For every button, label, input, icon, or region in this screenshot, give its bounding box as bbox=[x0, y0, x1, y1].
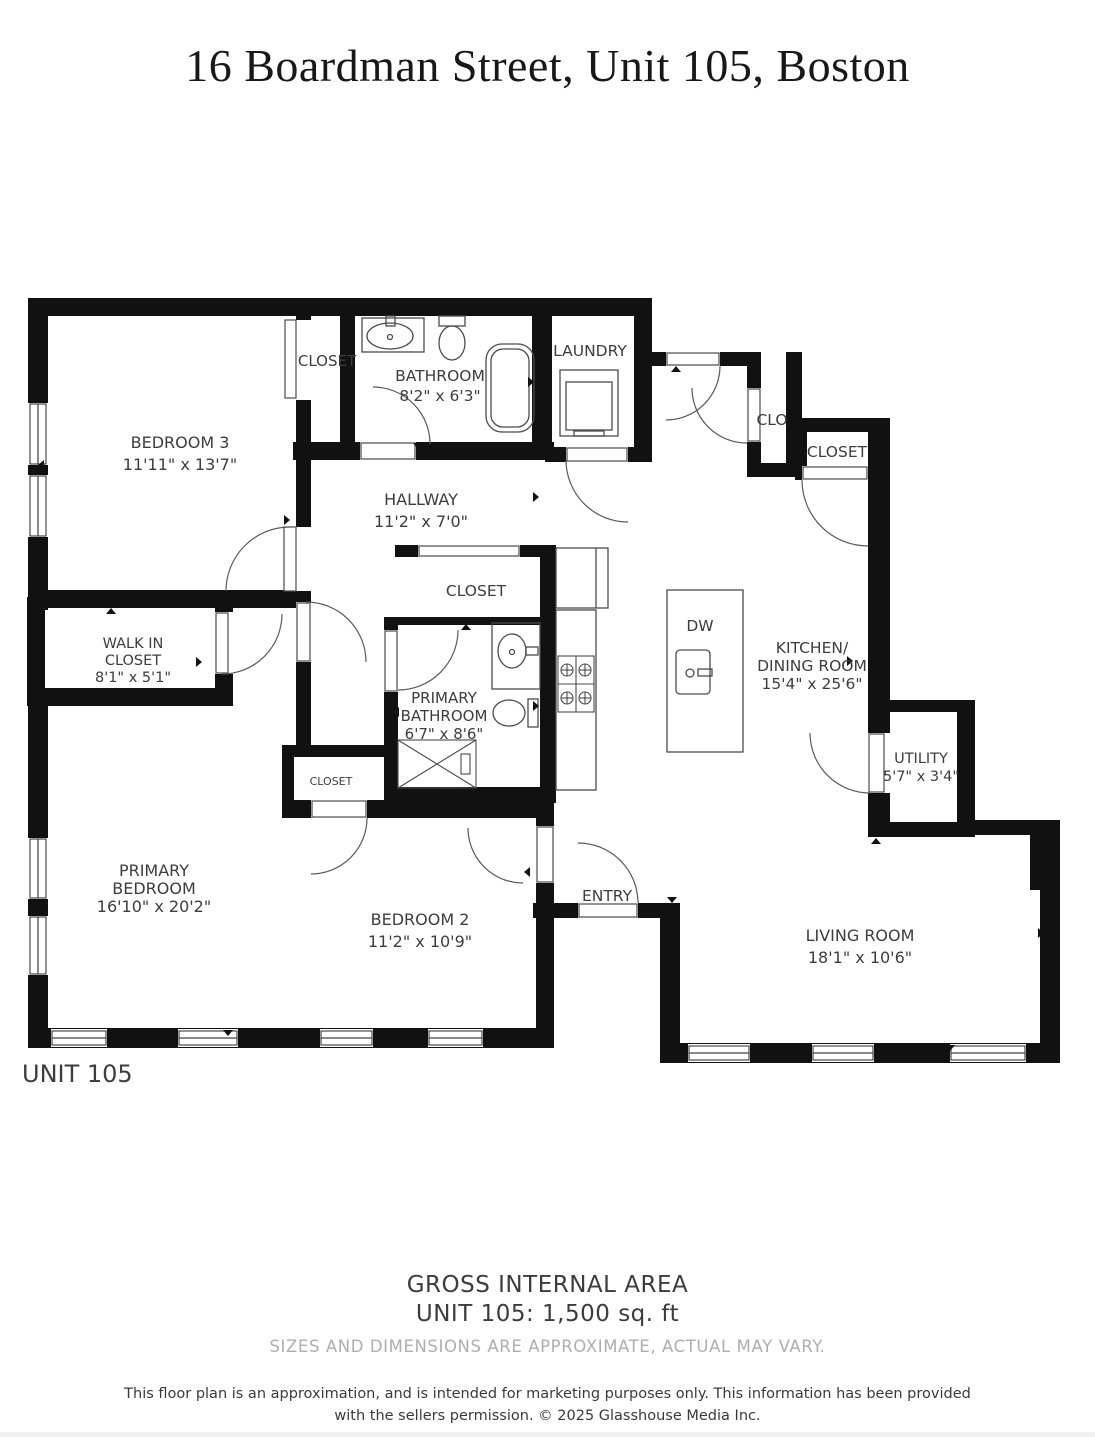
dishwasher-icon bbox=[676, 650, 712, 694]
primary-toilet-icon bbox=[493, 699, 538, 727]
walk-in-closet-label-2: CLOSET bbox=[105, 653, 161, 669]
kitchen-label-1: KITCHEN/ bbox=[776, 639, 849, 657]
closet-right-label: CLOSET bbox=[807, 443, 868, 461]
primary-bathroom-label-1: PRIMARY bbox=[411, 689, 478, 707]
walk-in-closet-dims: 8'1" x 5'1" bbox=[95, 670, 171, 686]
utility-label: UTILITY bbox=[894, 751, 948, 767]
closet-small-label: CLOSET bbox=[310, 775, 353, 788]
living-room-dims: 18'1" x 10'6" bbox=[808, 948, 912, 967]
bottom-strip bbox=[0, 1432, 1095, 1437]
bedroom3-label: BEDROOM 3 bbox=[131, 433, 230, 452]
primary-bedroom-label-2: BEDROOM bbox=[112, 879, 196, 898]
dw-label: DW bbox=[686, 617, 713, 635]
disclaimer: This floor plan is an approximation, and… bbox=[113, 1383, 983, 1428]
hallway-label: HALLWAY bbox=[384, 490, 458, 509]
utility-dims: 5'7" x 3'4" bbox=[883, 769, 959, 785]
living-room-label: LIVING ROOM bbox=[806, 926, 915, 945]
toilet-icon bbox=[439, 316, 465, 360]
bedroom3-dims: 11'11" x 13'7" bbox=[123, 455, 237, 474]
bathtub-icon bbox=[486, 344, 534, 432]
bathroom-label: BATHROOM bbox=[395, 367, 485, 385]
kitchen-label-2: DINING ROOM bbox=[757, 657, 867, 675]
gross-internal-area-title: GROSS INTERNAL AREA bbox=[0, 1272, 1095, 1298]
walk-in-closet-label-1: WALK IN bbox=[103, 636, 164, 652]
bathroom-sink-icon bbox=[362, 316, 424, 352]
entry-label: ENTRY bbox=[582, 887, 633, 905]
fridge-icon bbox=[556, 548, 608, 608]
primary-bathroom-dims: 6'7" x 8'6" bbox=[405, 725, 484, 743]
bathroom-dims: 8'2" x 6'3" bbox=[399, 387, 480, 405]
primary-bedroom-dims: 16'10" x 20'2" bbox=[97, 897, 211, 916]
shower-icon bbox=[398, 740, 476, 788]
washer-icon bbox=[560, 370, 618, 436]
gross-internal-area-value: UNIT 105: 1,500 sq. ft bbox=[0, 1301, 1095, 1327]
laundry-label: LAUNDRY bbox=[553, 342, 627, 360]
sizes-note: SIZES AND DIMENSIONS ARE APPROXIMATE, AC… bbox=[0, 1337, 1095, 1356]
stove-icon bbox=[558, 656, 594, 712]
kitchen-dims: 15'4" x 25'6" bbox=[762, 675, 863, 693]
kitchen-island bbox=[667, 590, 743, 752]
primary-bathroom-label-2: BATHROOM bbox=[401, 707, 488, 725]
floor-plan: BEDROOM 3 11'11" x 13'7" CLOSET BATHROOM… bbox=[0, 0, 1095, 1437]
closet-top-label: CLOSET bbox=[298, 352, 357, 370]
bedroom2-label: BEDROOM 2 bbox=[371, 910, 470, 929]
primary-sink-icon bbox=[492, 623, 540, 689]
primary-bedroom-label-1: PRIMARY bbox=[119, 861, 189, 880]
closet-mid-label: CLOSET bbox=[446, 582, 507, 600]
unit-label: UNIT 105 bbox=[22, 1060, 133, 1088]
bedroom2-dims: 11'2" x 10'9" bbox=[368, 932, 472, 951]
clo-label: CLO bbox=[756, 411, 787, 429]
hallway-dims: 11'2" x 7'0" bbox=[374, 512, 468, 531]
